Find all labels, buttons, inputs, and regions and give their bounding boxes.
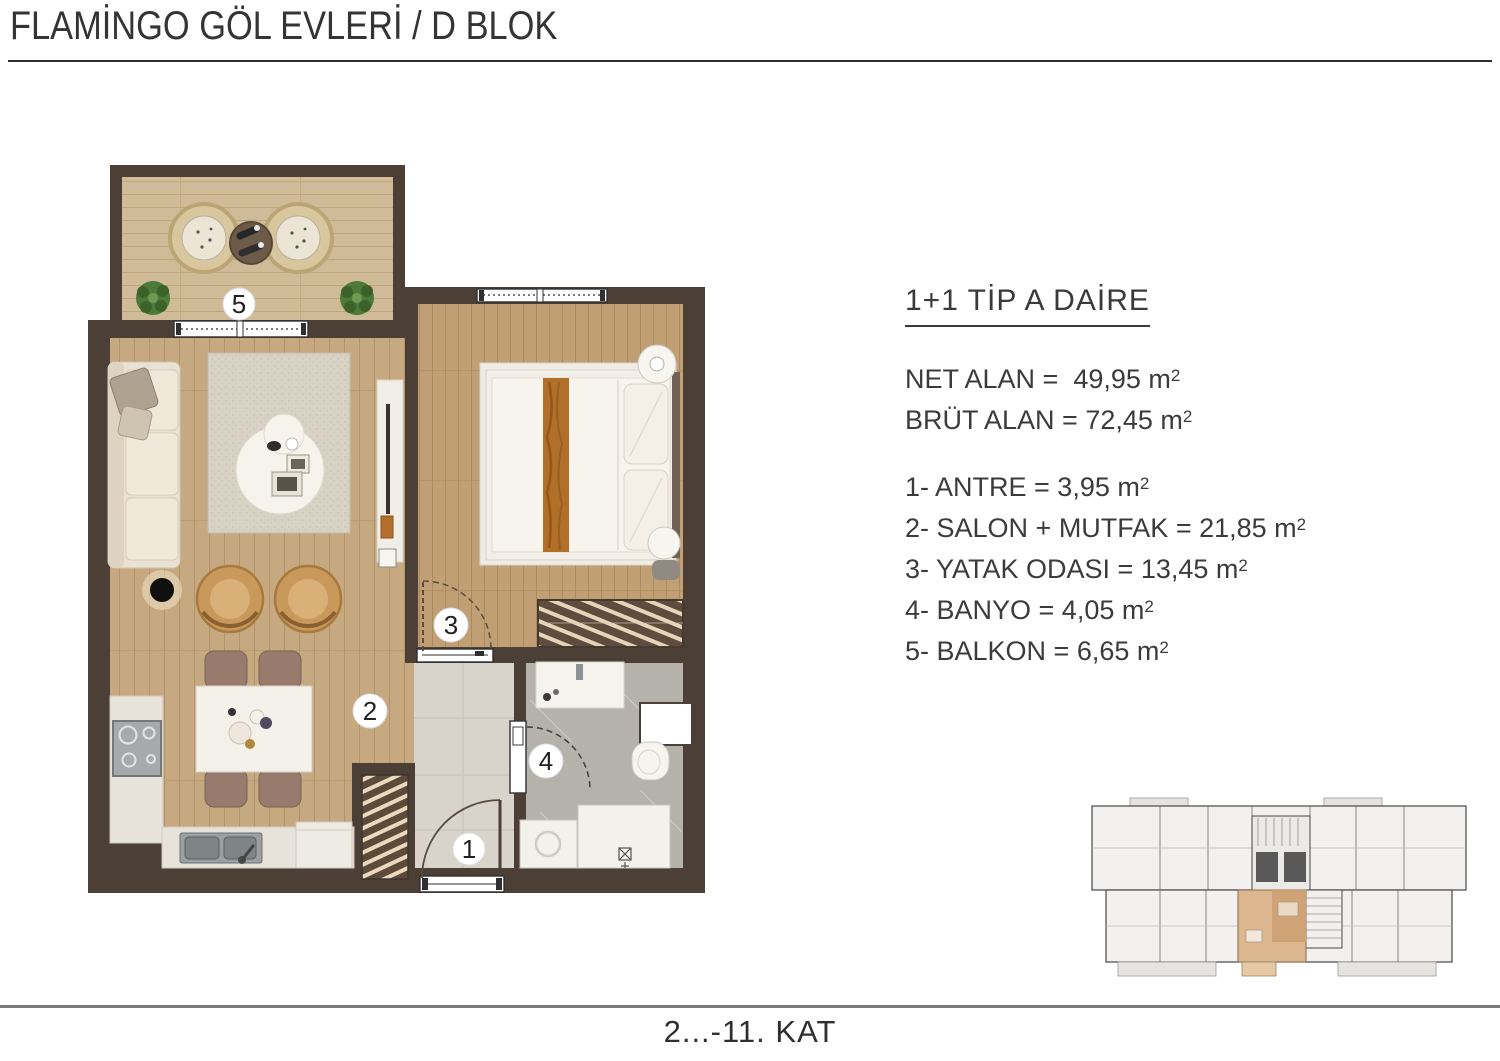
plant — [340, 281, 374, 315]
room-badge-4: 4 — [529, 744, 563, 778]
room-line-balkon: 5- BALKON = 6,65 m2 — [905, 629, 1306, 670]
svg-text:1: 1 — [462, 834, 476, 864]
room-line-antre: 1- ANTRE = 3,95 m2 — [905, 465, 1306, 506]
key-plan — [1092, 798, 1466, 976]
unit-info-panel: 1+1 TİP A DAİRE NET ALAN = 49,95 m2 BRÜT… — [905, 284, 1306, 670]
room-line-salon-mutfak: 2- SALON + MUTFAK = 21,85 m2 — [905, 506, 1306, 547]
svg-text:5: 5 — [232, 289, 246, 319]
armchair — [275, 566, 341, 632]
area-summary: NET ALAN = 49,95 m2 BRÜT ALAN = 72,45 m2 — [905, 357, 1306, 439]
armchair — [197, 566, 263, 632]
room-badge-2: 2 — [353, 694, 387, 728]
gross-area-line: BRÜT ALAN = 72,45 m2 — [905, 398, 1306, 439]
shaft-niche — [640, 703, 692, 745]
svg-text:3: 3 — [444, 610, 458, 640]
plant — [136, 281, 170, 315]
floor-range-label: 2...-11. KAT — [0, 1014, 1500, 1050]
bottom-divider — [0, 1005, 1500, 1008]
room-badge-5: 5 — [223, 288, 255, 320]
svg-text:4: 4 — [539, 746, 553, 776]
room-line-banyo: 4- BANYO = 4,05 m2 — [905, 588, 1306, 629]
key-plan-highlighted-unit — [1238, 890, 1306, 976]
room-line-yatak-odasi: 3- YATAK ODASI = 13,45 m2 — [905, 547, 1306, 588]
page: FLAMİNGO GÖL EVLERİ / D BLOK — [0, 0, 1500, 1061]
unit-title: 1+1 TİP A DAİRE — [905, 284, 1150, 327]
svg-text:2: 2 — [363, 696, 377, 726]
room-badge-3: 3 — [434, 608, 468, 642]
net-area-line: NET ALAN = 49,95 m2 — [905, 357, 1306, 398]
room-badge-1: 1 — [453, 833, 485, 865]
room-list: 1- ANTRE = 3,95 m2 2- SALON + MUTFAK = 2… — [905, 465, 1306, 670]
